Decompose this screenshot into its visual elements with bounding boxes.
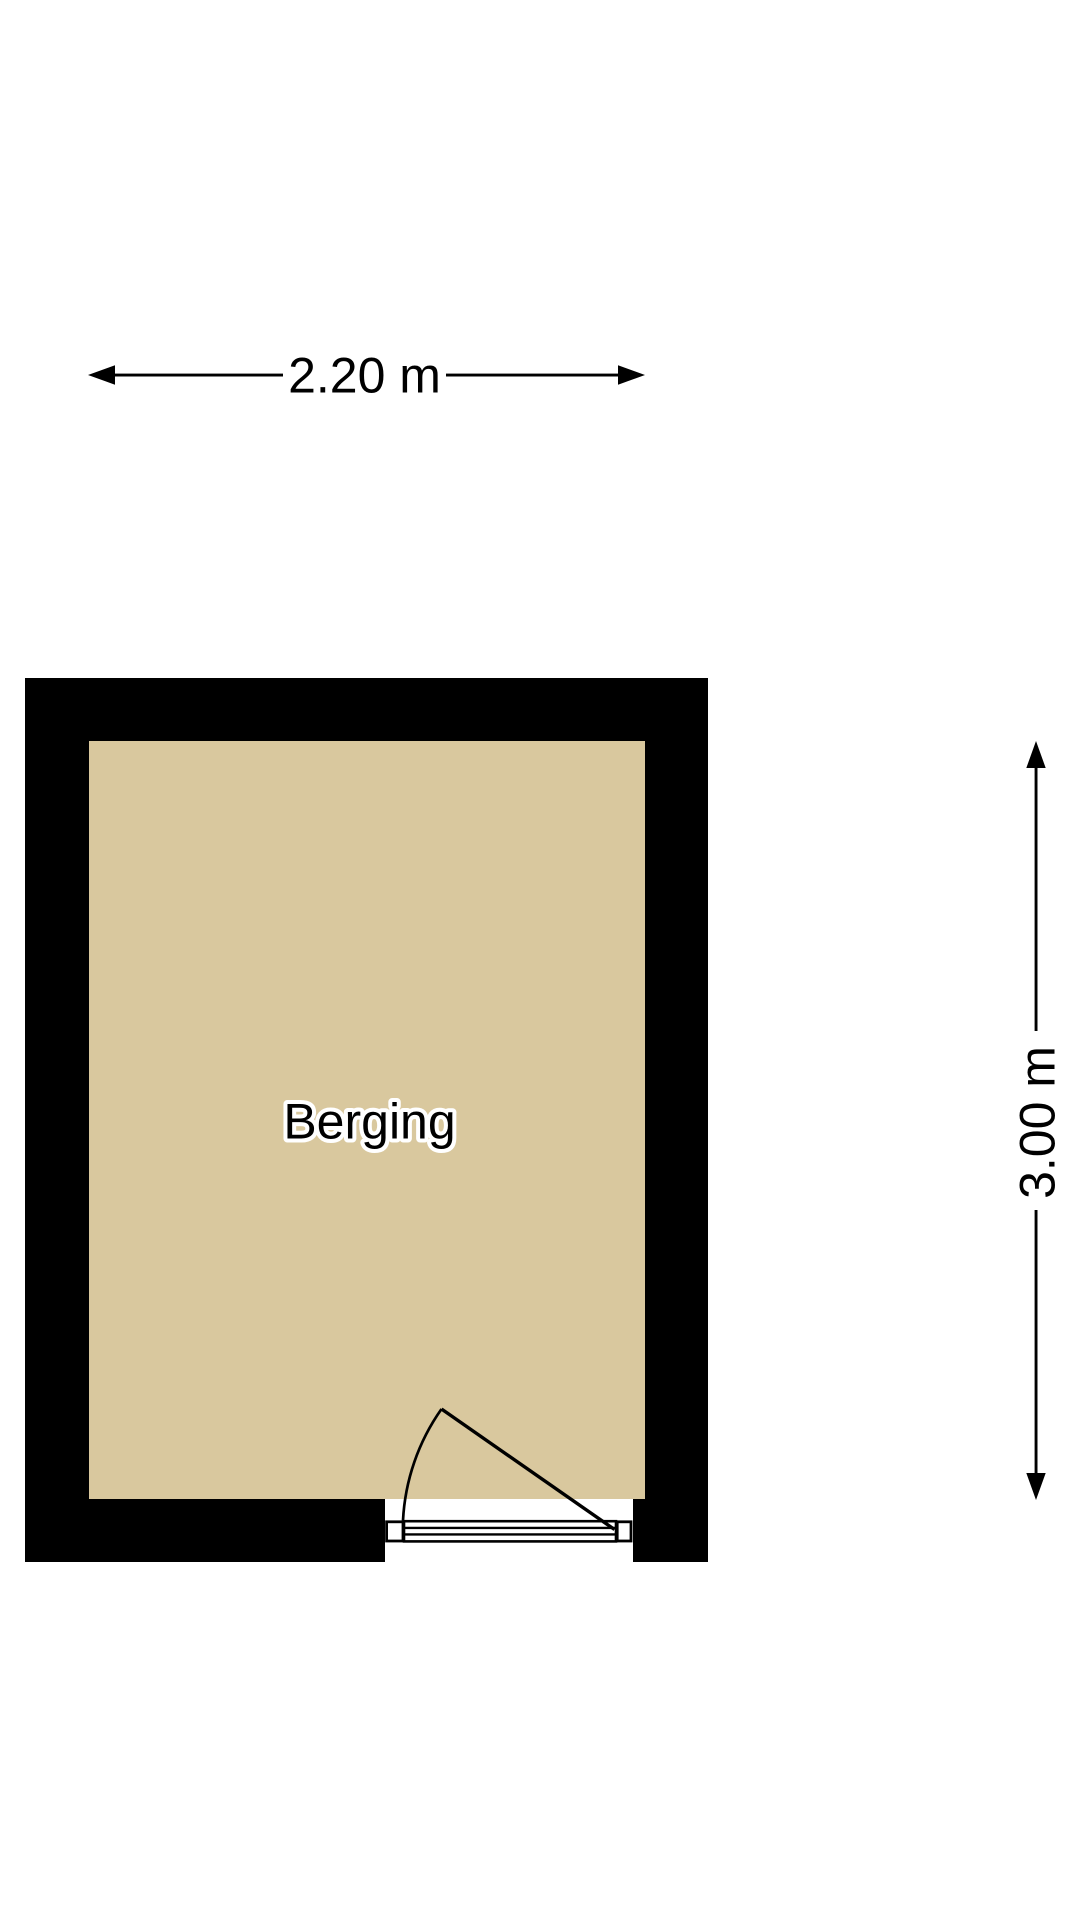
- svg-text:3.00 m: 3.00 m: [1010, 1046, 1066, 1199]
- svg-text:2.20 m: 2.20 m: [288, 348, 441, 404]
- svg-text:Berging: Berging: [283, 1093, 455, 1149]
